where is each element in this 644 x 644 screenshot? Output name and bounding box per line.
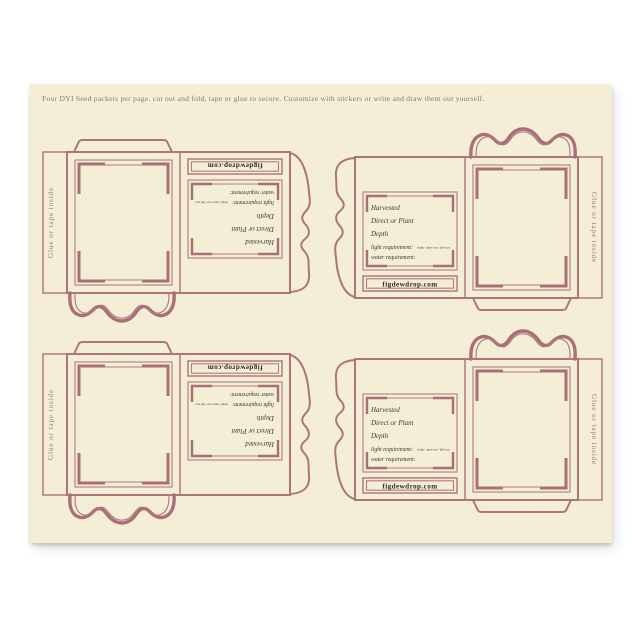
- product-photo-background: { "header": { "instructions": "Four DYI …: [0, 0, 644, 644]
- packet-instance: [335, 129, 602, 310]
- packet-instance: [335, 331, 602, 512]
- seed-packet-bottom-right: [333, 330, 605, 512]
- seed-packet-bottom-left: [40, 342, 312, 524]
- instructions-text: Four DYI Seed packets per page. cut out …: [42, 94, 602, 103]
- seed-packet-top-right: Glue or tape inside: [333, 128, 605, 310]
- notepad-page: Four DYI Seed packets per page. cut out …: [30, 84, 612, 543]
- packet-instance: [43, 140, 310, 321]
- packet-instance: [43, 342, 310, 523]
- seed-packet-top-left: [40, 140, 312, 322]
